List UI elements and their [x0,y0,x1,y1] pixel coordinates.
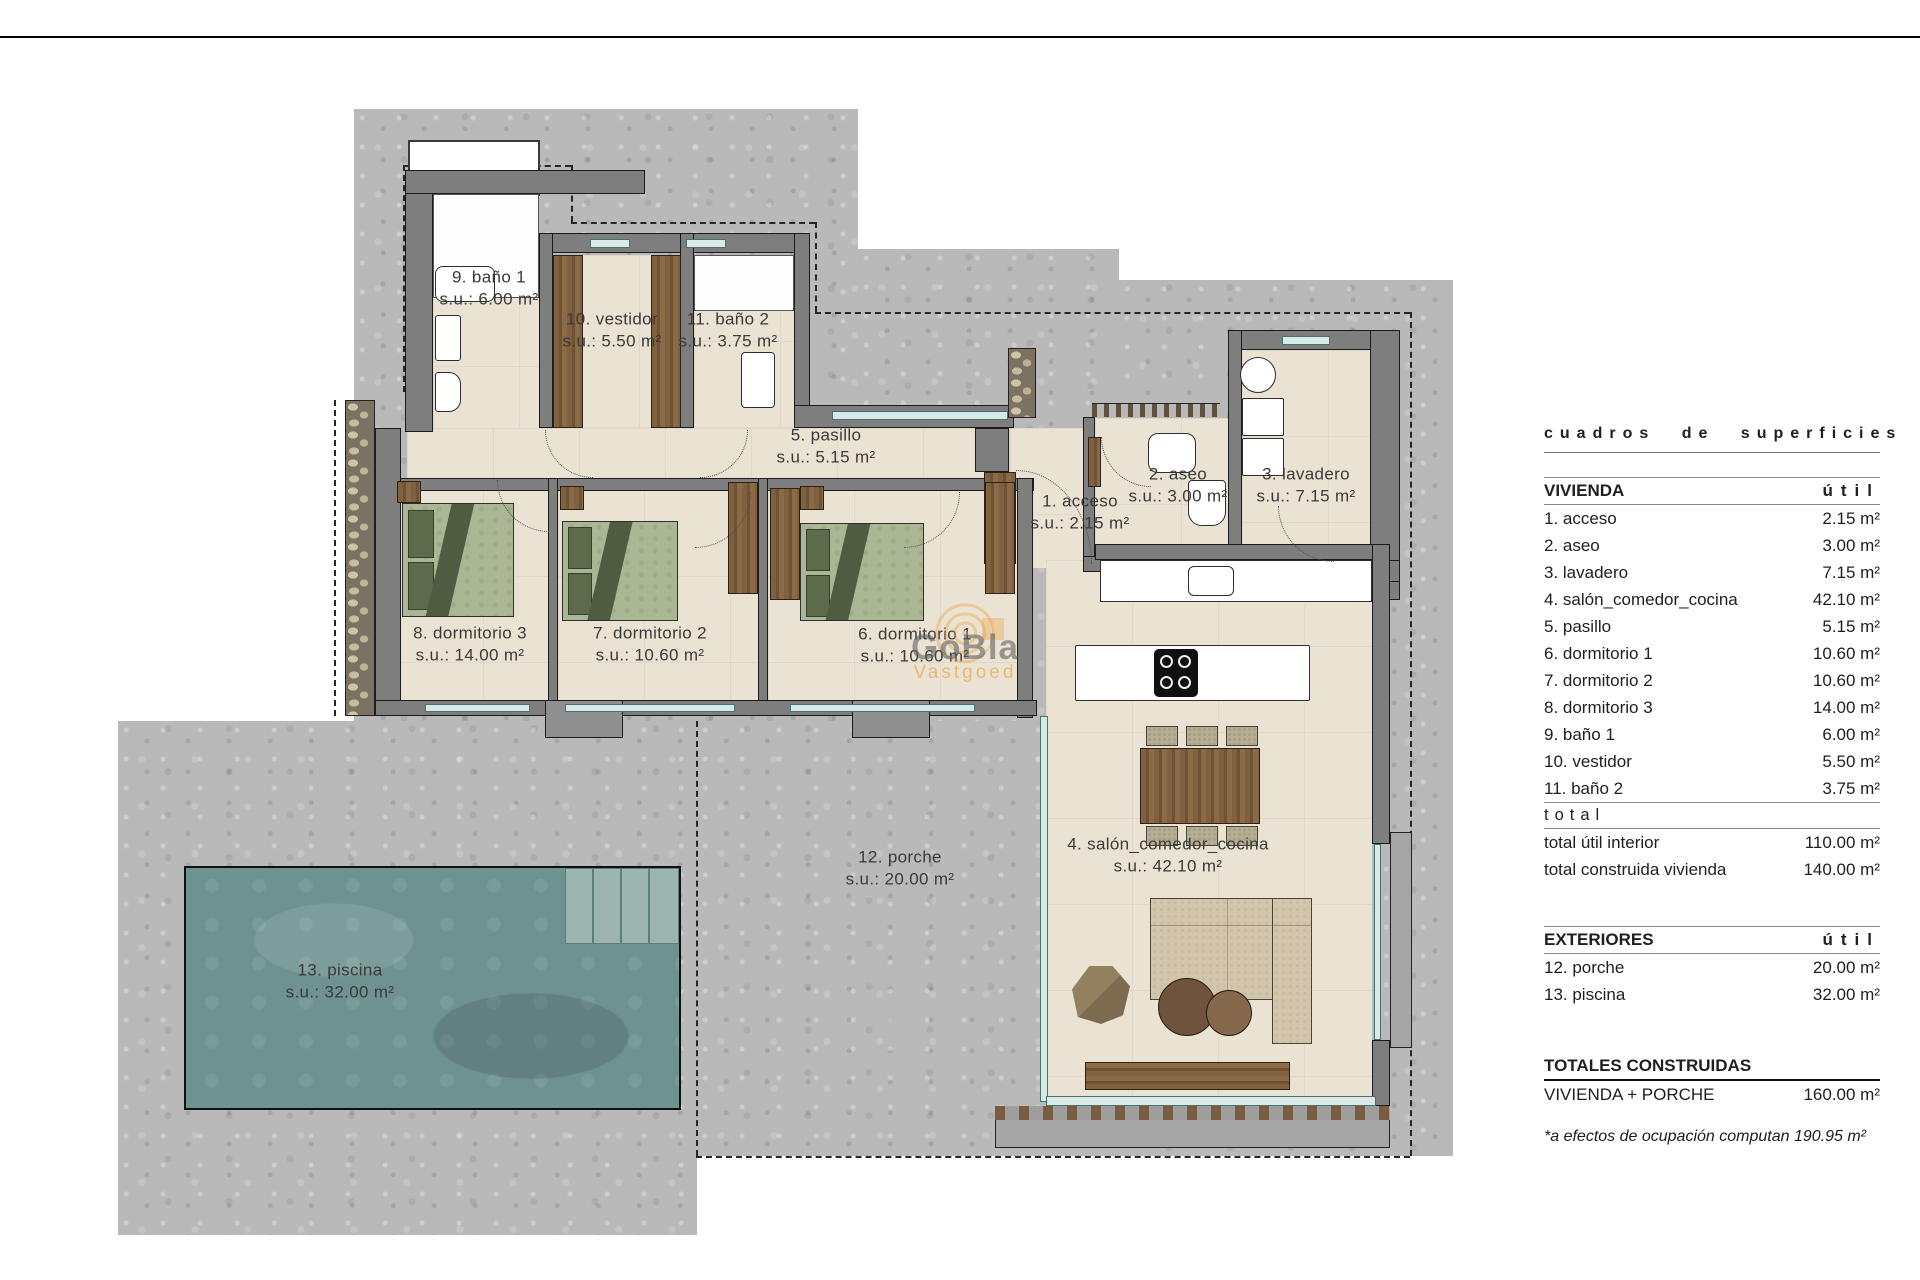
util-column-header: útil [1823,930,1881,950]
window [590,239,630,248]
glass-wall [1040,716,1048,1102]
row-label: total útil interior [1544,833,1659,853]
room-area: s.u.: 5.15 m² [777,447,876,469]
window [425,704,530,712]
row-label: 10. vestidor [1544,752,1632,772]
room-label-acceso: 1. acceso s.u.: 2.15 m² [1031,491,1130,536]
pergola-strip [995,1106,1390,1120]
table-row: total construida vivienda 140.00 m² [1544,856,1880,883]
exteriores-header: EXTERIORES [1544,930,1654,950]
setback-dashed-line [696,721,698,1156]
nightstand-icon [800,486,824,510]
table-row: 9. baño 1 6.00 m² [1544,721,1880,748]
room-name: 3. lavadero [1257,464,1356,486]
room-name: 12. porche [846,847,955,869]
row-label: 2. aseo [1544,536,1600,556]
surface-tables-title: cuadros de superficies [1544,425,1880,453]
room-name: 11. baño 2 [679,309,778,331]
row-value: 160.00 m² [1803,1085,1880,1105]
exteriores-header-row: EXTERIORES útil [1544,926,1880,954]
window [790,704,975,712]
dining-table-icon [1140,748,1260,824]
sideboard-icon [1085,1062,1290,1090]
wall [794,233,810,428]
pool-steps [649,868,679,944]
chair-icon [1146,726,1178,746]
occupancy-footnote: *a efectos de ocupación computan 190.95 … [1544,1128,1880,1146]
row-value: 110.00 m² [1805,833,1880,853]
sheet-top-rule [0,36,1920,38]
sofa-chaise-icon [1272,898,1312,1044]
row-label: 6. dormitorio 1 [1544,644,1653,664]
room-name: 8. dormitorio 3 [413,623,527,645]
room-area: s.u.: 10.60 m² [593,645,707,667]
room-name: 9. baño 1 [440,267,539,289]
hatched-wall [1092,403,1220,417]
laundry-sink-icon [1240,357,1276,393]
row-label: VIVIENDA + PORCHE [1544,1085,1715,1105]
room-name: 7. dormitorio 2 [593,623,707,645]
pool-steps [621,868,649,944]
room-area: s.u.: 32.00 m² [286,982,395,1004]
wall [375,428,401,716]
washing-machine-icon [1242,398,1284,436]
setback-dashed-line [696,1156,1410,1158]
chair-icon [1186,726,1218,746]
toilet-icon [435,372,461,412]
window [1282,336,1330,345]
room-area: s.u.: 7.15 m² [1257,486,1356,508]
room-label-porche: 12. porche s.u.: 20.00 m² [846,847,955,892]
door [1088,437,1101,487]
room-label-piscina: 13. piscina s.u.: 32.00 m² [286,960,395,1005]
row-value: 5.15 m² [1822,617,1880,637]
wardrobe-icon [770,488,800,600]
nightstand-icon [560,486,584,510]
wall [548,478,558,704]
table-row: 11. baño 2 3.75 m² [1544,775,1880,802]
kitchen-sink-icon [1188,566,1234,596]
room-area: s.u.: 42.10 m² [1067,856,1269,878]
wall [758,478,768,704]
toilet-icon [741,352,775,408]
room-area: s.u.: 2.15 m² [1031,513,1130,535]
row-value: 5.50 m² [1822,752,1880,772]
room-label-dormitorio3: 8. dormitorio 3 s.u.: 14.00 m² [413,623,527,668]
util-column-header: útil [1823,481,1881,501]
wall [405,170,645,194]
window [686,239,726,248]
totales-header: TOTALES CONSTRUIDAS [1544,1053,1880,1081]
row-value: 2.15 m² [1822,509,1880,529]
table-row: 3. lavadero 7.15 m² [1544,559,1880,586]
chair-icon [1226,726,1258,746]
room-name: 4. salón_comedor_cocina [1067,834,1269,856]
row-value: 32.00 m² [1813,985,1880,1005]
wall [539,233,553,428]
table-row: total útil interior 110.00 m² [1544,829,1880,856]
pool-steps [565,868,593,944]
vivienda-header: VIVIENDA [1544,481,1624,501]
table-row: 10. vestidor 5.50 m² [1544,748,1880,775]
room-name: 13. piscina [286,960,395,982]
row-value: 10.60 m² [1813,644,1880,664]
room-area: s.u.: 20.00 m² [846,869,955,891]
vanity-zone [694,255,794,311]
room-label-lavadero: 3. lavadero s.u.: 7.15 m² [1257,464,1356,509]
window [832,411,1008,420]
wall [397,478,1034,491]
table-row: 7. dormitorio 2 10.60 m² [1544,667,1880,694]
wall [1372,544,1390,844]
stone-pillar [1008,348,1036,418]
row-value: 10.60 m² [1813,671,1880,691]
window [1374,844,1381,1040]
row-label: 4. salón_comedor_cocina [1544,590,1738,610]
row-label: 13. piscina [1544,985,1625,1005]
row-label: 5. pasillo [1544,617,1611,637]
table-row: 12. porche 20.00 m² [1544,954,1880,981]
wall [975,428,1009,472]
row-label: 3. lavadero [1544,563,1628,583]
row-label: total construida vivienda [1544,860,1726,880]
table-row: 5. pasillo 5.15 m² [1544,613,1880,640]
room-area: s.u.: 3.75 m² [679,331,778,353]
window [565,704,735,712]
setback-dashed-line [334,400,336,716]
room-label-banio1: 9. baño 1 s.u.: 6.00 m² [440,267,539,312]
row-value: 3.00 m² [1822,536,1880,556]
wall [405,170,433,432]
table-row: 2. aseo 3.00 m² [1544,532,1880,559]
vivienda-header-row: VIVIENDA útil [1544,477,1880,505]
sink-icon [435,315,461,361]
row-label: 7. dormitorio 2 [1544,671,1653,691]
wall [539,233,810,253]
room-name: 1. acceso [1031,491,1130,513]
coffee-table-icon [1206,990,1252,1036]
bed-icon [402,503,514,617]
table-row: VIVIENDA + PORCHE 160.00 m² [1544,1081,1880,1108]
table-row: 6. dormitorio 1 10.60 m² [1544,640,1880,667]
setback-dashed-line [815,222,817,312]
room-name: 5. pasillo [777,425,876,447]
room-name: 2. aseo [1129,464,1228,486]
stone-cladding [345,400,375,716]
sliding-door [1046,1096,1376,1106]
room-label-pasillo: 5. pasillo s.u.: 5.15 m² [777,425,876,470]
row-label: 12. porche [1544,958,1624,978]
row-label: 9. baño 1 [1544,725,1615,745]
room-label-dormitorio2: 7. dormitorio 2 s.u.: 10.60 m² [593,623,707,668]
nightstand-icon [397,481,421,503]
row-value: 20.00 m² [1813,958,1880,978]
stove-icon [1154,649,1198,697]
row-label: 1. acceso [1544,509,1617,529]
row-label: 11. baño 2 [1544,779,1623,799]
pool-steps [593,868,621,944]
setback-dashed-line [815,312,1410,314]
watermark-sub: Vastgoed [900,662,1030,684]
row-value: 140.00 m² [1803,860,1880,880]
room-label-vestidor: 10. vestidor s.u.: 5.50 m² [563,309,662,354]
surface-tables: cuadros de superficies VIVIENDA útil 1. … [1544,425,1880,1146]
table-row: 1. acceso 2.15 m² [1544,505,1880,532]
exterior-step [1390,832,1412,1048]
bed-icon [562,521,678,621]
kitchen-counter [1100,560,1372,602]
setback-dashed-line [571,222,815,224]
room-area: s.u.: 5.50 m² [563,331,662,353]
row-value: 7.15 m² [1822,563,1880,583]
room-area: s.u.: 6.00 m² [440,289,539,311]
table-row: 4. salón_comedor_cocina 42.10 m² [1544,586,1880,613]
row-value: 3.75 m² [1822,779,1880,799]
room-label-salon: 4. salón_comedor_cocina s.u.: 42.10 m² [1067,834,1269,879]
row-label: 8. dormitorio 3 [1544,698,1653,718]
row-value: 42.10 m² [1813,590,1880,610]
table-row: 8. dormitorio 3 14.00 m² [1544,694,1880,721]
room-label-banio2: 11. baño 2 s.u.: 3.75 m² [679,309,778,354]
room-name: 10. vestidor [563,309,662,331]
row-value: 14.00 m² [1813,698,1880,718]
table-row: 13. piscina 32.00 m² [1544,981,1880,1008]
room-area: s.u.: 14.00 m² [413,645,527,667]
room-label-aseo: 2. aseo s.u.: 3.00 m² [1129,464,1228,509]
total-divider: total [1544,802,1880,829]
wardrobe-icon [985,482,1015,594]
room-area: s.u.: 3.00 m² [1129,486,1228,508]
row-value: 6.00 m² [1822,725,1880,745]
